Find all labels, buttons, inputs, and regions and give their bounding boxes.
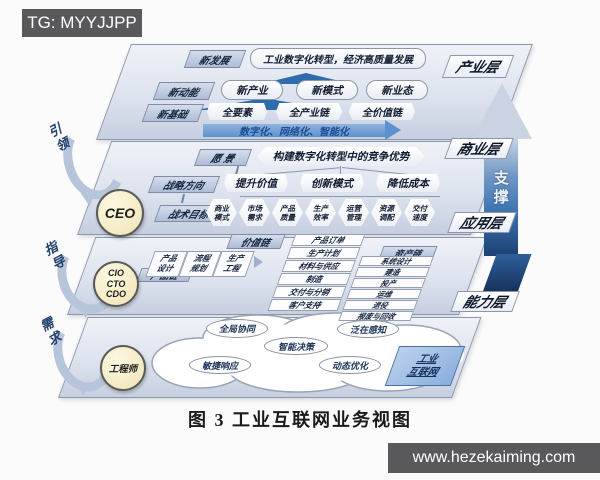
strategy-direction-text: 战略方向 [161, 177, 206, 192]
operation-maintenance-item: 运维 [346, 289, 422, 299]
full-industry-chain-hex: 全产业链 [276, 103, 342, 120]
product-items-row: 产品设计 流程规划 生产工程 [146, 251, 255, 275]
production-engineering-text: 生产工程 [220, 254, 247, 274]
digitalization-flow-arrow: 数字化、网络化、智能化 [203, 124, 385, 137]
enhance-value-text: 提升价值 [235, 176, 277, 191]
ceo-label: CEO [105, 205, 135, 221]
flow-arrow-head-icon [385, 120, 401, 140]
vision-text: 愿 景 [209, 150, 237, 165]
support-arrow-foot [482, 254, 532, 294]
business-model-text: 商业模式 [213, 204, 231, 222]
cdo-label: CDO [106, 289, 126, 299]
new-format-text: 新业态 [381, 83, 413, 98]
support-arrow-head-icon [472, 80, 532, 139]
bottom-right-watermark-badge: www.hezekaiming.com [388, 443, 600, 473]
reduce-cost-pill: 降低成本 [376, 174, 440, 192]
product-quality-text: 产品质量 [279, 204, 297, 222]
value-chain-chip: 价值链 [226, 234, 285, 249]
market-demand-text: 市场需求 [246, 204, 264, 222]
process-planning-text: 流程规划 [186, 254, 213, 274]
new-model-pill: 新模式 [296, 80, 358, 100]
production-efficiency-text: 生产效率 [312, 204, 330, 222]
industry-layer-label-text: 产业层 [453, 57, 502, 77]
connector-line [340, 166, 341, 174]
new-model-text: 新模式 [311, 83, 343, 98]
dynamic-optimization-ellipse: 动态优化 [319, 356, 381, 374]
production-plan-text: 生产计划 [305, 248, 341, 259]
new-momentum-text: 新动能 [166, 84, 201, 99]
construction-text: 建造 [383, 267, 402, 278]
system-design-text: 系统设计 [379, 256, 413, 267]
product-orders-text: 产品订单 [310, 235, 346, 246]
new-industry-pill: 新产业 [221, 80, 283, 100]
engineer-circle: 工程师 [100, 345, 146, 391]
business-layer-label-text: 商业层 [454, 139, 503, 159]
all-elements-hex: 全要素 [207, 103, 267, 120]
ubiquitous-perception-text: 泛在感知 [350, 323, 386, 336]
product-design-text: 产品设计 [153, 254, 180, 274]
vision-chip: 愿 景 [194, 149, 252, 166]
capability-layer-label: 能力层 [450, 291, 520, 312]
intelligent-decision-text: 智能决策 [278, 340, 314, 353]
global-collaboration-text: 全局协同 [219, 322, 255, 335]
new-foundation-text: 新基础 [155, 106, 190, 121]
new-development-chip: 新发展 [184, 50, 247, 68]
business-layer-label: 商业层 [444, 138, 514, 159]
ubiquitous-perception-ellipse: 泛在感知 [337, 320, 399, 338]
dynamic-optimization-text: 动态优化 [332, 359, 368, 372]
application-layer-label-text: 应用层 [457, 213, 506, 233]
innovation-model-pill: 创新模式 [300, 174, 364, 192]
connector-line [240, 196, 440, 197]
figure-caption-text: 图 3 工业互联网业务视图 [188, 410, 412, 430]
cio-cto-cdo-circle: CIO CTO CDO [93, 261, 139, 307]
delivery-distribution-text: 交付与分销 [287, 287, 331, 298]
new-format-pill: 新业态 [366, 80, 428, 100]
delivery-distribution-item: 交付与分销 [272, 286, 346, 298]
agile-response-text: 敏捷响应 [202, 359, 238, 372]
vision-pill-text: 构建数字化转型中的竞争优势 [273, 149, 410, 164]
new-development-text: 新发展 [197, 52, 232, 67]
commissioning-text: 投产 [379, 278, 398, 289]
reduce-cost-text: 降低成本 [387, 176, 429, 191]
top-left-watermark-badge: TG: MYYJJPP [22, 9, 142, 37]
construction-item: 建造 [354, 267, 430, 277]
commissioning-item: 投产 [350, 278, 426, 288]
product-orders-item: 产品订单 [291, 234, 365, 246]
industry-layer-label: 产业层 [442, 55, 514, 78]
new-industry-text: 新产业 [236, 83, 268, 98]
figure-caption: 图 3 工业互联网业务视图 [0, 406, 600, 432]
industry-goal-pill: 工业数字化转型，经济高质量发展 [250, 48, 426, 69]
materials-supply-text: 材料与供应 [297, 261, 341, 272]
innovation-model-text: 创新模式 [311, 176, 353, 191]
agile-response-ellipse: 敏捷响应 [189, 356, 251, 374]
tactics-goal-text: 战术目标 [166, 206, 211, 221]
system-design-item: 系统设计 [358, 256, 434, 266]
manufacturing-item: 制造 [277, 273, 351, 285]
materials-supply-item: 材料与供应 [282, 260, 356, 272]
intelligent-decision-ellipse: 智能决策 [264, 337, 328, 355]
full-value-chain-hex: 全价值链 [349, 103, 415, 120]
delivery-speed-text: 交付速度 [411, 204, 429, 222]
industrial-internet-text-line2: 互联网 [405, 366, 440, 379]
industrial-internet-text-line1: 工业 [415, 353, 440, 366]
operations-management-text: 运营管理 [345, 204, 363, 222]
cto-label: CTO [107, 279, 126, 289]
application-layer-label: 应用层 [447, 212, 517, 233]
capability-layer-label-text: 能力层 [460, 292, 509, 312]
top-left-watermark-text: TG: MYYJJPP [27, 13, 137, 33]
new-foundation-chip: 新基础 [142, 104, 205, 122]
decommissioning-item: 退役 [342, 300, 418, 310]
new-momentum-chip: 新动能 [153, 82, 216, 100]
enhance-value-pill: 提升价值 [224, 174, 288, 192]
full-industry-chain-text: 全产业链 [289, 104, 329, 119]
ceo-circle: CEO [96, 189, 144, 237]
global-collaboration-ellipse: 全局协同 [206, 319, 268, 338]
strategy-direction-chip: 战略方向 [148, 176, 220, 193]
all-elements-text: 全要素 [222, 104, 252, 119]
chevron-right-icon [254, 256, 263, 268]
bottom-right-watermark-text: www.hezekaiming.com [413, 449, 576, 467]
manufacturing-text: 制造 [304, 274, 324, 285]
digitalization-flow-text: 数字化、网络化、智能化 [239, 123, 349, 138]
cio-label: CIO [108, 268, 124, 278]
support-arrow-label: 支撑 [493, 170, 510, 208]
resource-allocation-text: 资源调配 [378, 204, 396, 222]
customer-support-item: 客户支持 [267, 299, 341, 311]
engineer-label: 工程师 [109, 361, 138, 375]
operation-maintenance-text: 运维 [375, 289, 394, 300]
customer-support-text: 客户支持 [287, 300, 323, 311]
industry-goal-text: 工业数字化转型，经济高质量发展 [263, 51, 413, 66]
production-plan-item: 生产计划 [286, 247, 360, 259]
value-chain-text: 价值链 [239, 235, 273, 249]
vision-pill: 构建数字化转型中的竞争优势 [257, 147, 425, 166]
decommissioning-text: 退役 [371, 300, 390, 311]
full-value-chain-text: 全价值链 [362, 104, 402, 119]
